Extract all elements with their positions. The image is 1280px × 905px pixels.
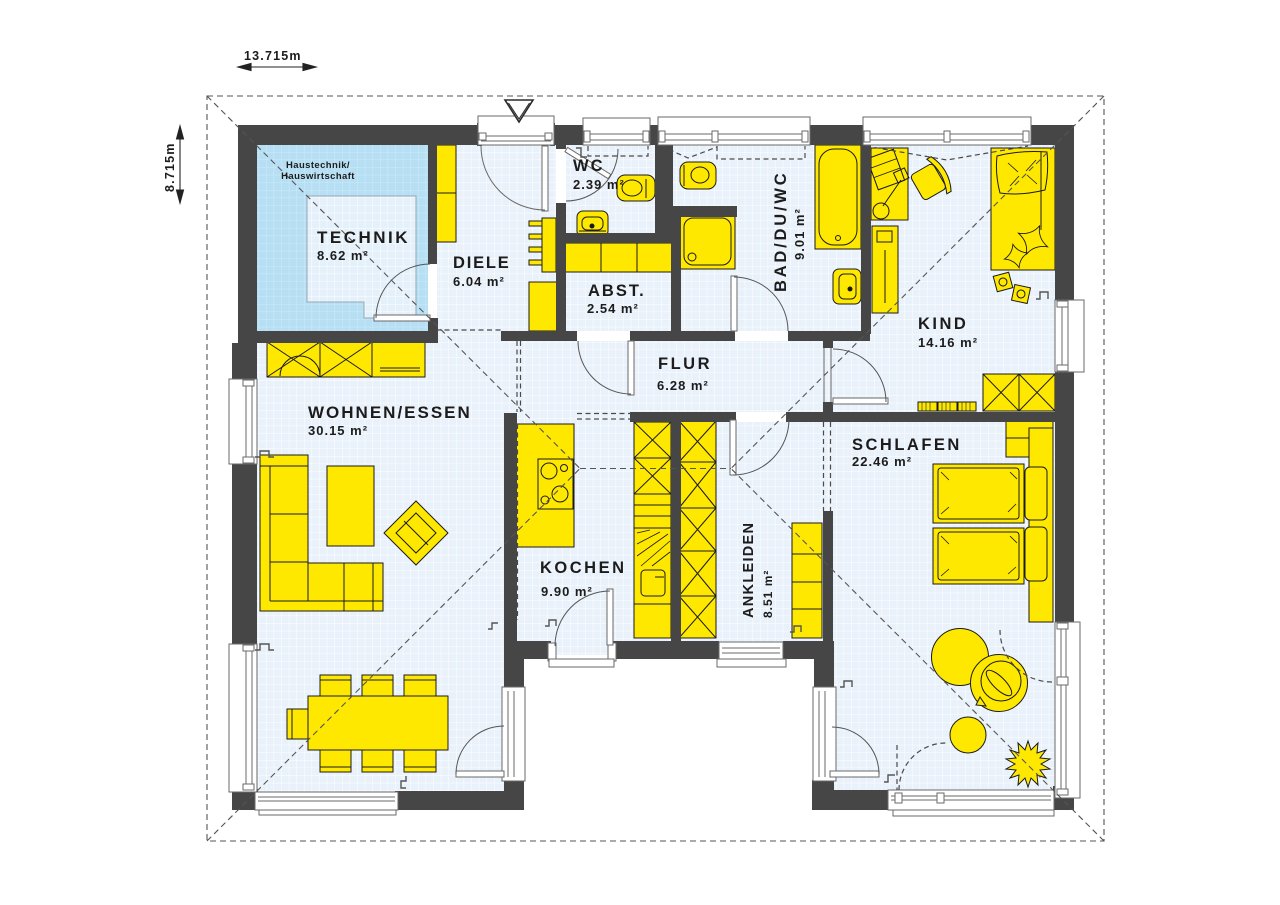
svg-text:BAD/DU/WC: BAD/DU/WC bbox=[772, 171, 790, 292]
svg-text:FLUR: FLUR bbox=[658, 355, 712, 373]
svg-text:13.715m: 13.715m bbox=[244, 49, 302, 63]
svg-text:9.01 m²: 9.01 m² bbox=[792, 208, 807, 260]
svg-text:Haustechnik/: Haustechnik/ bbox=[286, 160, 350, 171]
svg-text:8.51 m²: 8.51 m² bbox=[761, 570, 775, 618]
svg-text:8.62 m²: 8.62 m² bbox=[317, 248, 369, 263]
svg-text:TECHNIK: TECHNIK bbox=[317, 228, 410, 247]
svg-text:8.715m: 8.715m bbox=[163, 142, 177, 192]
svg-text:WOHNEN/ESSEN: WOHNEN/ESSEN bbox=[308, 403, 472, 422]
svg-text:9.90 m²: 9.90 m² bbox=[541, 584, 593, 599]
svg-text:SCHLAFEN: SCHLAFEN bbox=[852, 436, 962, 454]
svg-text:22.46 m²: 22.46 m² bbox=[852, 454, 912, 469]
svg-text:KOCHEN: KOCHEN bbox=[540, 559, 627, 577]
svg-text:DIELE: DIELE bbox=[453, 254, 511, 272]
svg-text:6.04 m²: 6.04 m² bbox=[453, 274, 505, 289]
svg-text:30.15 m²: 30.15 m² bbox=[308, 423, 368, 438]
svg-text:ANKLEIDEN: ANKLEIDEN bbox=[741, 522, 757, 618]
svg-text:WC: WC bbox=[573, 157, 605, 175]
svg-text:14.16 m²: 14.16 m² bbox=[918, 335, 978, 350]
svg-text:2.54 m²: 2.54 m² bbox=[587, 301, 639, 316]
svg-text:2.39 m²: 2.39 m² bbox=[573, 177, 625, 192]
svg-text:ABST.: ABST. bbox=[588, 282, 646, 300]
svg-text:Hauswirtschaft: Hauswirtschaft bbox=[281, 171, 355, 182]
svg-text:KIND: KIND bbox=[918, 315, 968, 333]
svg-text:6.28 m²: 6.28 m² bbox=[657, 378, 709, 393]
